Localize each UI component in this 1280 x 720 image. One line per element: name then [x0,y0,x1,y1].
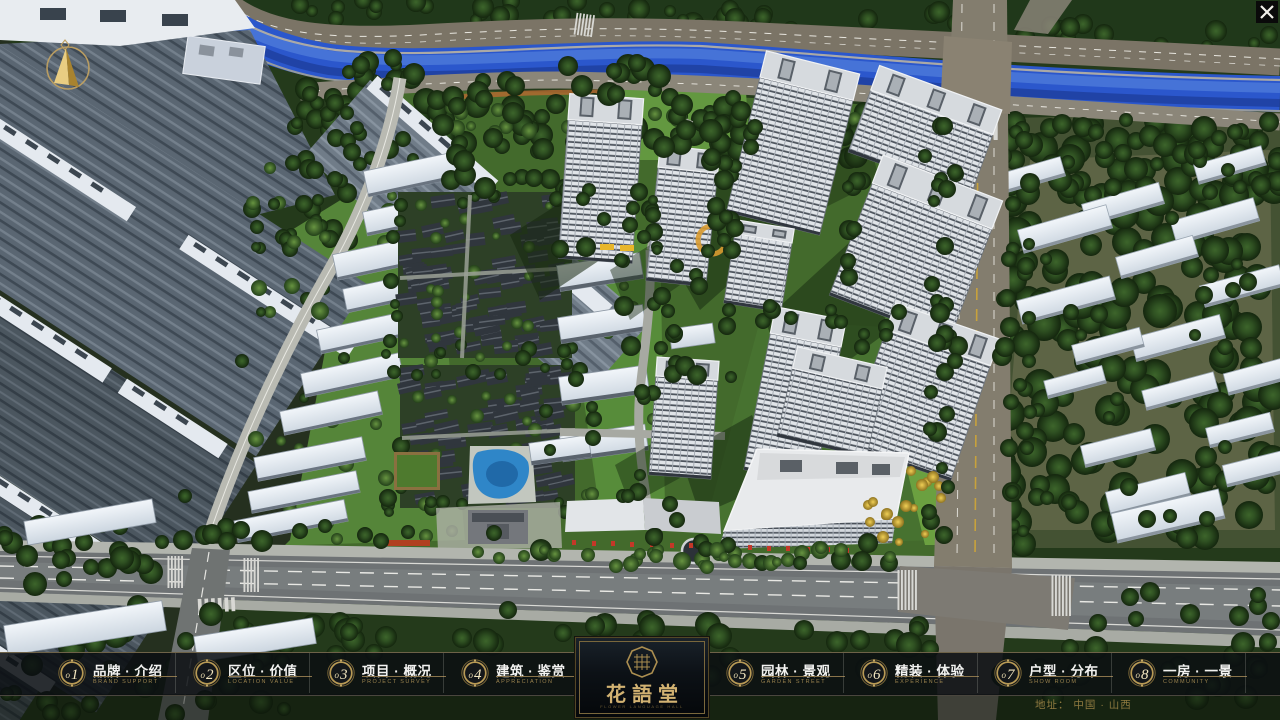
svg-text:8: 8 [1141,667,1149,683]
svg-text:o: o [66,670,71,680]
svg-text:o: o [868,670,873,680]
svg-text:4: 4 [474,667,482,683]
svg-text:5: 5 [739,667,747,683]
svg-text:1: 1 [71,667,79,683]
svg-text:6: 6 [873,667,881,683]
svg-text:3: 3 [339,667,348,683]
svg-text:2: 2 [206,667,214,683]
svg-text:o: o [201,670,206,680]
svg-text:o: o [734,670,739,680]
svg-text:o: o [1136,670,1141,680]
svg-text:o: o [469,670,474,680]
svg-text:o: o [1002,670,1007,680]
svg-text:o: o [335,670,340,680]
